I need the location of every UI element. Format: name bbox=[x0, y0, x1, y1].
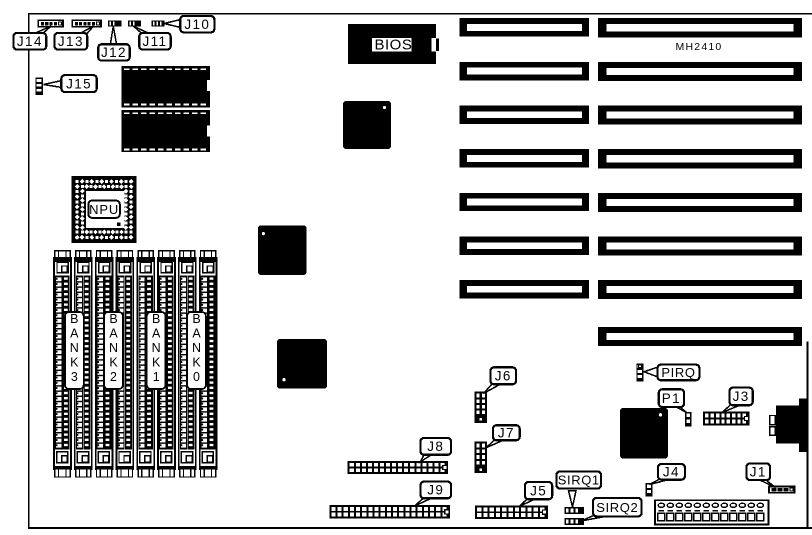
svg-text:A: A bbox=[152, 326, 161, 340]
svg-text:2: 2 bbox=[110, 370, 117, 384]
svg-text:B: B bbox=[192, 312, 200, 326]
svg-text:0: 0 bbox=[193, 370, 200, 384]
svg-text:SIRQ1: SIRQ1 bbox=[558, 473, 600, 488]
svg-text:J3: J3 bbox=[733, 389, 750, 404]
svg-text:A: A bbox=[70, 326, 79, 340]
svg-text:A: A bbox=[109, 326, 118, 340]
svg-text:1: 1 bbox=[153, 370, 160, 384]
svg-text:A: A bbox=[192, 326, 201, 340]
svg-text:PIRQ: PIRQ bbox=[661, 365, 695, 380]
svg-text:BIOS: BIOS bbox=[375, 37, 413, 54]
svg-text:J13: J13 bbox=[58, 34, 84, 49]
svg-text:J14: J14 bbox=[17, 34, 43, 49]
svg-text:K: K bbox=[109, 355, 118, 369]
svg-text:B: B bbox=[70, 312, 78, 326]
svg-text:J6: J6 bbox=[495, 369, 512, 384]
svg-text:SIRQ2: SIRQ2 bbox=[596, 500, 638, 515]
svg-text:3: 3 bbox=[71, 370, 78, 384]
svg-text:J11: J11 bbox=[142, 34, 167, 49]
svg-text:J5: J5 bbox=[530, 483, 547, 498]
svg-text:K: K bbox=[192, 355, 201, 369]
svg-text:J8: J8 bbox=[427, 439, 444, 454]
svg-text:K: K bbox=[152, 355, 161, 369]
svg-text:J9: J9 bbox=[427, 483, 444, 498]
svg-text:N: N bbox=[152, 341, 161, 355]
svg-text:K: K bbox=[70, 355, 79, 369]
svg-text:N: N bbox=[70, 341, 79, 355]
svg-text:J12: J12 bbox=[101, 45, 127, 60]
svg-text:J15: J15 bbox=[66, 76, 92, 91]
svg-text:J4: J4 bbox=[663, 465, 680, 480]
svg-text:N: N bbox=[192, 341, 201, 355]
svg-text:NPU: NPU bbox=[89, 202, 119, 217]
svg-text:J1: J1 bbox=[750, 465, 767, 480]
svg-text:MH2410: MH2410 bbox=[676, 41, 723, 53]
svg-text:J10: J10 bbox=[184, 17, 210, 32]
svg-text:N: N bbox=[109, 341, 118, 355]
svg-text:J7: J7 bbox=[498, 426, 515, 441]
svg-text:P1: P1 bbox=[662, 391, 681, 406]
svg-text:B: B bbox=[152, 312, 160, 326]
svg-text:B: B bbox=[109, 312, 117, 326]
